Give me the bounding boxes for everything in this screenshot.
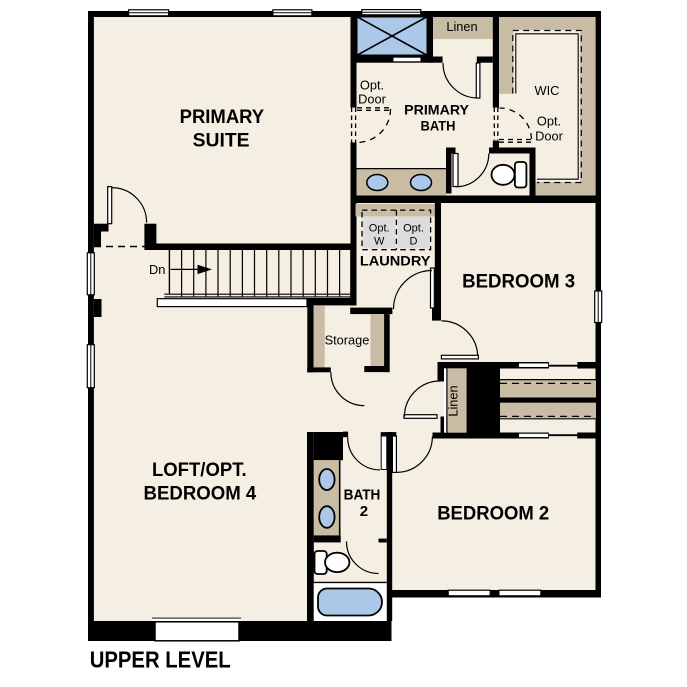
svg-text:D: D — [410, 236, 418, 248]
svg-text:LAUNDRY: LAUNDRY — [360, 253, 431, 269]
svg-text:Opt.: Opt. — [369, 222, 390, 234]
svg-text:BEDROOM 3: BEDROOM 3 — [462, 272, 575, 293]
svg-text:BEDROOM 4: BEDROOM 4 — [144, 484, 257, 505]
svg-text:Door: Door — [535, 129, 563, 144]
svg-text:Linen: Linen — [446, 19, 477, 34]
svg-text:Door: Door — [358, 91, 386, 106]
svg-text:LOFT/OPT.: LOFT/OPT. — [152, 460, 247, 481]
svg-text:Linen: Linen — [445, 385, 460, 416]
svg-text:W: W — [374, 236, 385, 248]
svg-text:Dn: Dn — [149, 262, 165, 277]
svg-text:2: 2 — [360, 503, 368, 520]
svg-text:SUITE: SUITE — [193, 131, 250, 152]
svg-text:Storage: Storage — [325, 333, 370, 348]
svg-text:Opt.: Opt. — [360, 78, 384, 93]
svg-text:Opt.: Opt. — [403, 222, 424, 234]
svg-text:Opt.: Opt. — [537, 114, 561, 129]
svg-text:BATH: BATH — [421, 117, 456, 133]
svg-text:PRIMARY: PRIMARY — [180, 107, 265, 128]
svg-text:UPPER LEVEL: UPPER LEVEL — [90, 646, 231, 672]
svg-text:WIC: WIC — [535, 83, 560, 98]
svg-text:BEDROOM 2: BEDROOM 2 — [437, 504, 549, 525]
svg-text:PRIMARY: PRIMARY — [404, 102, 469, 118]
svg-text:BATH: BATH — [344, 487, 381, 504]
